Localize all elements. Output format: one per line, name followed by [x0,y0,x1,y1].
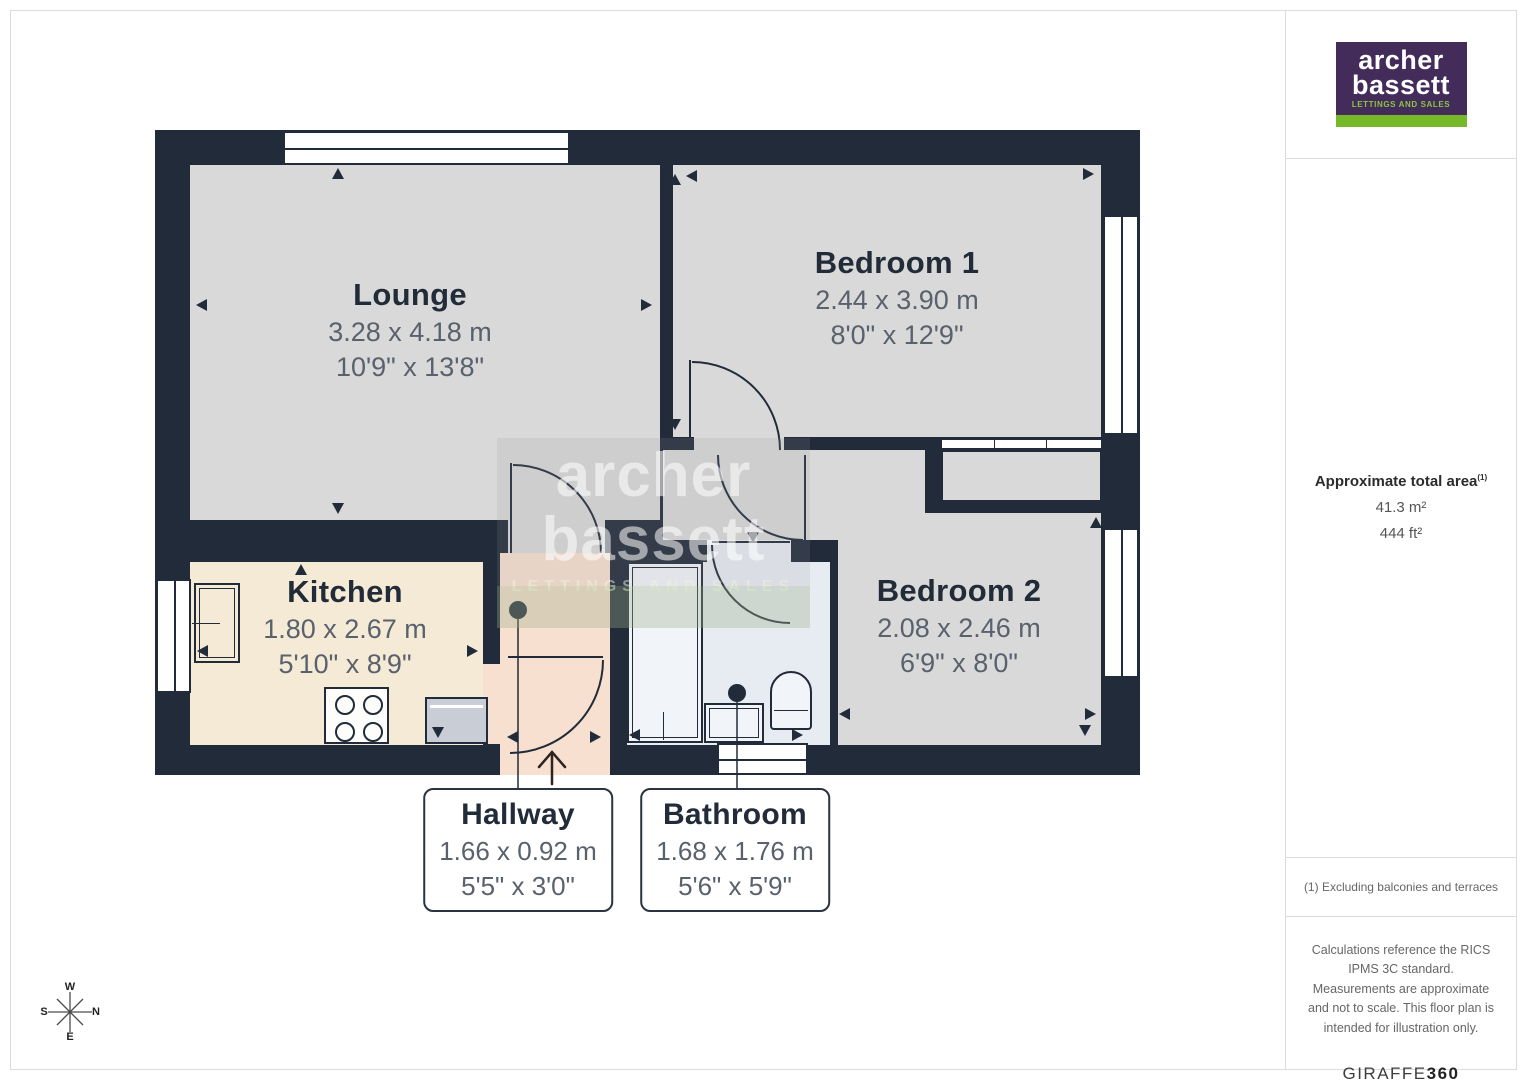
logo-line2: bassett [1336,73,1467,98]
room-dim-metric: 1.80 x 2.67 m [263,614,427,645]
disclaimer-section: Calculations reference the RICS IPMS 3C … [1286,915,1516,1069]
area-summary-section: Approximate total area(1) 41.3 m² 444 ft… [1286,158,1516,857]
lounge-window [283,131,570,165]
area-title-text: Approximate total area [1315,473,1478,490]
disclaimer-text: Calculations reference the RICS IPMS 3C … [1308,941,1494,1038]
area-imperial-value: 444 ft² [1380,525,1423,542]
room-dim-imperial: 5'6" x 5'9" [656,871,814,902]
room-dim-imperial: 6'9" x 8'0" [877,648,1042,679]
area-title: Approximate total area(1) [1315,473,1487,490]
area-metric-value: 41.3 m² [1376,499,1427,516]
room-label-kitchen: Kitchen 1.80 x 2.67 m 5'10" x 8'9" [263,574,427,680]
logo-section: archer bassett LETTINGS AND SALES [1286,11,1516,159]
kitchen-hob [324,687,389,744]
room-name: Bedroom 2 [877,573,1042,609]
provider-suffix: 360 [1427,1064,1460,1080]
room-label-lounge: Lounge 3.28 x 4.18 m 10'9" x 13'8" [328,277,492,383]
hob-burner [363,695,383,715]
room-dim-imperial: 5'5" x 3'0" [439,871,597,902]
compass-left-label: S [40,1006,47,1018]
toilet-seat-line [774,710,808,711]
archer-bassett-logo: archer bassett LETTINGS AND SALES [1336,42,1467,127]
window-pane-line [718,759,807,761]
basin-inner-outline [709,708,759,738]
window-pane-line [174,580,176,692]
bathroom-window [717,743,808,775]
area-footnote-ref: (1) [1477,473,1487,482]
shower-enclosure [627,562,703,743]
compass-rose: W N E S [38,975,102,1049]
floorplan-page: archer bassett LETTINGS AND SALES Lounge… [0,0,1527,1080]
toilet [770,671,812,730]
provider-brand: GIRAFFE360 [1286,1064,1516,1080]
room-hallway-floor [500,553,610,775]
room-name: Lounge [328,277,492,313]
sliding-door-tick [994,440,995,448]
room-dim-imperial: 10'9" x 13'8" [328,352,492,383]
shower-inner-outline [632,567,698,738]
window-pane-line [1121,529,1123,677]
kitchen-window [156,579,191,693]
hob-burner [335,722,355,742]
room-name: Bathroom [656,798,814,832]
window-pane-line [284,148,569,150]
hob-burner [363,722,383,742]
sliding-door-tick [1046,440,1047,448]
compass-bottom-label: E [66,1031,73,1043]
room-dim-imperial: 5'10" x 8'9" [263,649,427,680]
sink-divider-line [192,623,220,624]
callout-bathroom: Bathroom 1.68 x 1.76 m 5'6" x 5'9" [640,788,830,912]
info-sidebar: archer bassett LETTINGS AND SALES Approx… [1285,11,1516,1069]
room-name: Hallway [439,798,597,832]
compass-top-label: W [65,981,75,993]
room-name: Kitchen [263,574,427,610]
footnote-text: (1) Excluding balconies and terraces [1304,880,1498,894]
bedroom1-door-opening [694,437,784,451]
window-pane-line [1121,216,1123,434]
room-dim-imperial: 8'0" x 12'9" [815,320,980,351]
logo-tagline: LETTINGS AND SALES [1336,100,1467,109]
bathroom-door-opening [707,540,791,564]
room-dim-metric: 3.28 x 4.18 m [328,317,492,348]
bathroom-basin [704,703,764,743]
kitchen-sink-counter [194,583,240,663]
closet-sliding-doors [941,439,1102,449]
closet-floor [943,452,1100,500]
compass-right-label: N [92,1006,100,1018]
room-label-bedroom2: Bedroom 2 2.08 x 2.46 m 6'9" x 8'0" [877,573,1042,679]
hob-burner [335,695,355,715]
bedroom2-window [1103,528,1139,678]
room-dim-metric: 2.44 x 3.90 m [815,285,980,316]
room-name: Bedroom 1 [815,245,980,281]
shower-drain-line [663,712,664,740]
lounge-vestibule-floor [508,520,605,553]
provider-name: GIRAFFE [1342,1064,1426,1080]
appliance-detail-line [430,705,483,708]
logo-green-bar [1336,115,1467,127]
room-label-bedroom1: Bedroom 1 2.44 x 3.90 m 8'0" x 12'9" [815,245,980,351]
room-dim-metric: 2.08 x 2.46 m [877,613,1042,644]
callout-hallway: Hallway 1.66 x 0.92 m 5'5" x 3'0" [423,788,613,912]
room-dim-metric: 1.66 x 0.92 m [439,836,597,867]
kitchen-appliance [425,697,488,744]
bedroom1-window [1103,215,1139,435]
footnote-section: (1) Excluding balconies and terraces [1286,857,1516,917]
room-dim-metric: 1.68 x 1.76 m [656,836,814,867]
